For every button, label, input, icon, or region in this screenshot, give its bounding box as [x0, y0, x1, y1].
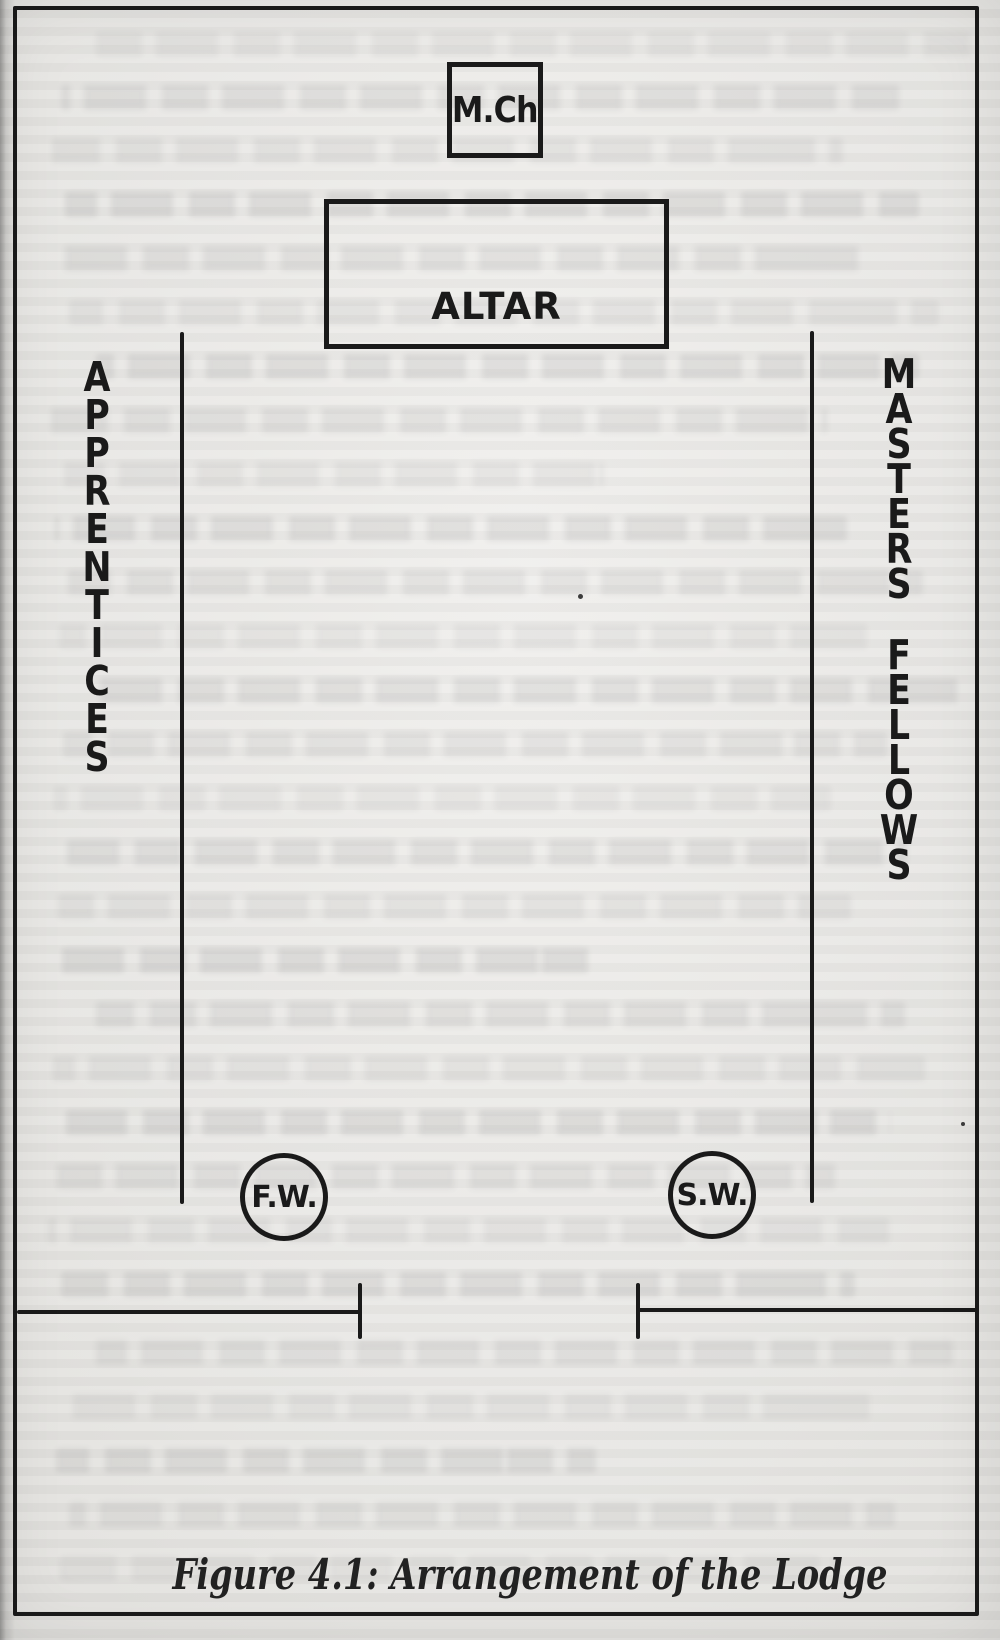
- scanned-book-page: M.Ch ALTAR APPRENTICES MASTERS FELLOWS F…: [0, 0, 1000, 1640]
- ink-speck: [961, 1122, 965, 1126]
- west-floor-line-left: [17, 1310, 360, 1314]
- west-floor-line-right: [638, 1308, 979, 1312]
- column-letter: S: [72, 738, 123, 776]
- figure-caption: Figure 4.1: Arrangement of the Lodge: [130, 1549, 930, 1601]
- fw-warden-label: F.W.: [251, 1180, 317, 1215]
- sw-warden-circle: S.W.: [668, 1151, 756, 1239]
- apprentices-label: APPRENTICES: [72, 358, 123, 776]
- west-floor-tick-right: [636, 1283, 640, 1339]
- sw-warden-label: S.W.: [676, 1178, 747, 1213]
- master-chair-label: M.Ch: [452, 90, 538, 131]
- altar-box: ALTAR: [324, 199, 669, 349]
- fellows-label: FELLOWS: [874, 638, 925, 883]
- west-floor-tick-left: [358, 1283, 362, 1339]
- masters-label: MASTERS: [874, 357, 925, 602]
- master-chair-box: M.Ch: [447, 62, 543, 158]
- scan-edge-shadow: [0, 0, 16, 1640]
- lodge-diagram: M.Ch ALTAR APPRENTICES MASTERS FELLOWS F…: [0, 0, 1000, 1640]
- left-column-divider-line: [180, 332, 184, 1204]
- right-column-divider-line: [810, 331, 814, 1203]
- altar-label: ALTAR: [431, 285, 562, 328]
- ink-speck: [578, 594, 583, 599]
- masters-fellows-column: MASTERS FELLOWS: [869, 357, 929, 883]
- fw-warden-circle: F.W.: [240, 1153, 328, 1241]
- column-letter: S: [874, 567, 925, 602]
